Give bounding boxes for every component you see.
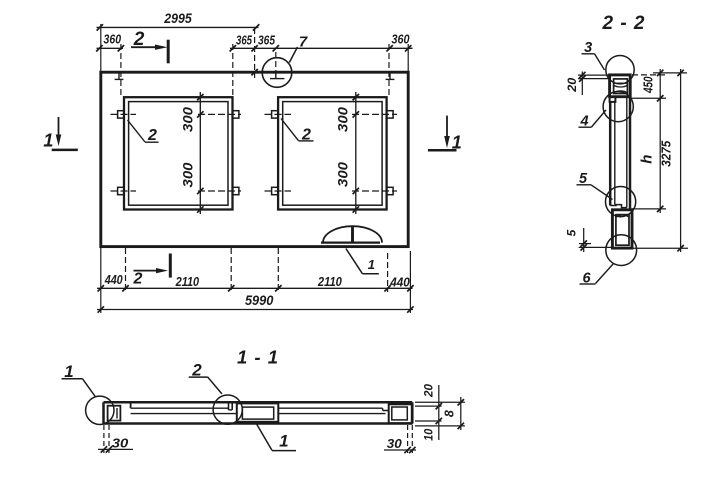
svg-text:3275: 3275 <box>660 140 674 167</box>
svg-text:1: 1 <box>43 131 53 151</box>
svg-text:1: 1 <box>279 432 288 451</box>
svg-text:5990: 5990 <box>245 293 274 308</box>
svg-text:300: 300 <box>336 161 351 187</box>
svg-text:7: 7 <box>299 34 308 51</box>
svg-text:20: 20 <box>565 77 579 92</box>
svg-text:450: 450 <box>641 76 655 93</box>
svg-text:8: 8 <box>443 410 457 417</box>
svg-text:2110: 2110 <box>317 275 342 289</box>
svg-text:440: 440 <box>389 275 409 289</box>
svg-text:1: 1 <box>368 257 375 272</box>
svg-text:365: 365 <box>258 34 276 48</box>
svg-text:30: 30 <box>112 436 129 450</box>
svg-text:360: 360 <box>392 33 410 47</box>
svg-text:300: 300 <box>336 106 351 132</box>
svg-text:300: 300 <box>181 106 196 132</box>
svg-text:20: 20 <box>422 384 436 398</box>
svg-text:2995: 2995 <box>163 11 192 26</box>
svg-text:2: 2 <box>147 127 157 144</box>
svg-text:2110: 2110 <box>175 275 199 289</box>
svg-text:440: 440 <box>104 273 123 287</box>
svg-text:30: 30 <box>387 437 402 451</box>
svg-text:10: 10 <box>422 429 436 441</box>
svg-text:360: 360 <box>104 33 122 47</box>
svg-text:5: 5 <box>565 229 579 236</box>
svg-text:1 - 1: 1 - 1 <box>237 347 279 368</box>
svg-text:300: 300 <box>181 162 196 188</box>
svg-text:h: h <box>638 155 655 164</box>
svg-text:2 - 2: 2 - 2 <box>601 13 645 34</box>
svg-text:2: 2 <box>133 271 143 288</box>
svg-text:365: 365 <box>236 34 253 48</box>
